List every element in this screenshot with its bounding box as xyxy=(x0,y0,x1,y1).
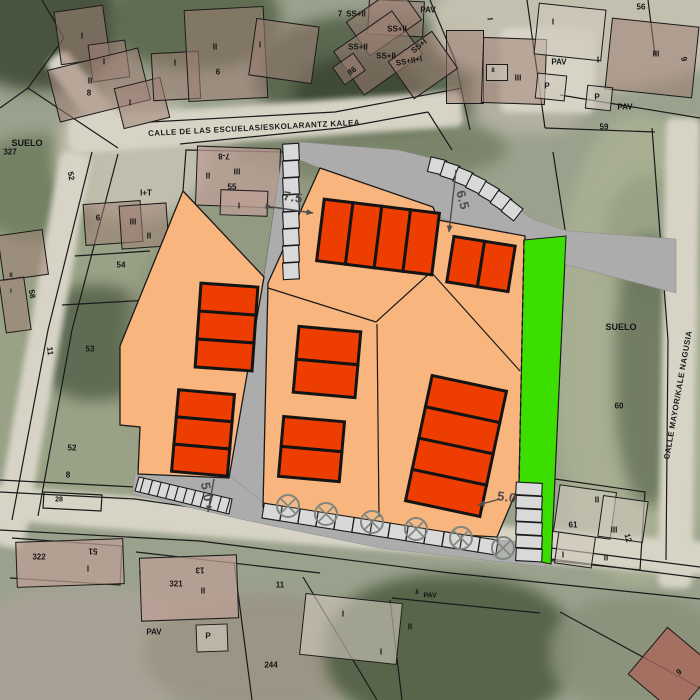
parcel-label: II xyxy=(9,273,12,279)
parcel-label: II xyxy=(595,496,599,505)
parcel-label: III xyxy=(611,526,618,535)
parcel-label: 28 xyxy=(55,497,63,504)
parcel-label: I xyxy=(380,648,382,657)
parcel-label: SS+II xyxy=(348,43,368,52)
parcel-label: 6 xyxy=(96,214,100,223)
parcel-label: I xyxy=(87,565,89,574)
parcel-label: 7-8 xyxy=(218,152,230,161)
parcel-label: II xyxy=(147,232,151,241)
parcel-label: II xyxy=(408,623,412,632)
parcel-label: 58 xyxy=(27,289,37,299)
dimension-label: 5.0 xyxy=(496,488,517,506)
parcel-label: I xyxy=(552,18,554,27)
parcel-label: PAV xyxy=(420,6,435,15)
parcel-label: PAV xyxy=(146,628,161,637)
parcel-label: I xyxy=(139,570,141,579)
dimension-label: 5.0 xyxy=(198,481,216,503)
parcel-label: 51 xyxy=(89,547,98,556)
parcel-label: 244 xyxy=(264,661,277,670)
dimension-label: 6.5 xyxy=(453,189,473,212)
parcel-label: III xyxy=(130,218,137,227)
parcel-label: I xyxy=(10,289,12,295)
parcel-label: I xyxy=(562,551,564,560)
parcel-label: 321 xyxy=(169,580,182,589)
parcel-label: I xyxy=(259,41,261,50)
parcel-label: 56 xyxy=(637,3,646,12)
parcel-label: 8 xyxy=(491,68,494,74)
parcel-label: P xyxy=(544,82,549,91)
parcel-label: I xyxy=(485,17,494,20)
parcel-label: 8 xyxy=(66,471,70,480)
parcel-label: 8 xyxy=(87,89,91,98)
parcel-label: PAV xyxy=(423,593,436,600)
street-name-right: CALLE MAYOR/KALE NAGUSIA xyxy=(662,330,694,460)
parcel-label: 53 xyxy=(86,345,95,354)
parcel-label: 13 xyxy=(196,566,205,575)
parcel-label: P xyxy=(594,93,599,102)
parcel-label: I xyxy=(238,202,240,211)
parcel-label: III xyxy=(515,74,522,83)
parcel-label: III xyxy=(234,168,241,177)
parcel-label: SUELO xyxy=(605,322,636,332)
parcel-label: 61 xyxy=(569,521,578,530)
parcel-label: 327 xyxy=(3,148,16,157)
parcel-label: 55 xyxy=(228,183,237,192)
parcel-label: SS+II xyxy=(387,25,407,34)
parcel-label: 59 xyxy=(600,123,609,132)
parcel-label: 11 xyxy=(45,346,55,355)
labels-layer: IIII8ISUELO32752III6I7PAVSS+IISS+IISS+II… xyxy=(0,0,700,700)
parcel-label: I xyxy=(597,56,599,65)
parcel-label: 86 xyxy=(346,65,358,77)
parcel-label: II xyxy=(88,77,92,86)
parcel-label: 9 xyxy=(679,56,689,62)
parcel-label: II xyxy=(604,554,608,563)
parcel-label: SS+II+I xyxy=(395,54,423,67)
parcel-label: 52 xyxy=(68,444,77,453)
dimension-label: 7.5 xyxy=(282,188,304,206)
parcel-label: I xyxy=(81,32,83,41)
parcel-label: III xyxy=(653,50,660,59)
parcel-label: 322 xyxy=(32,553,45,562)
parcel-label: I xyxy=(174,59,176,68)
parcel-label: 8 xyxy=(415,590,418,596)
parcel-label: 9 xyxy=(675,667,684,677)
parcel-label: I xyxy=(129,99,131,108)
parcel-label: SS+I xyxy=(409,37,428,55)
parcel-label: PAV xyxy=(617,103,632,112)
parcel-label: PAV xyxy=(551,58,566,67)
parcel-label: SS+II xyxy=(346,10,366,19)
parcel-label: 11 xyxy=(276,581,284,590)
parcel-label: 52 xyxy=(66,171,76,181)
parcel-label: 7 xyxy=(338,10,342,19)
parcel-label: SS+II xyxy=(376,52,396,61)
parcel-label: I+T xyxy=(140,189,152,198)
parcel-label: P xyxy=(205,632,210,641)
parcel-label: SUELO xyxy=(11,138,42,148)
parcel-label: I xyxy=(342,610,344,619)
cadastral-site-plan: IIII8ISUELO32752III6I7PAVSS+IISS+IISS+II… xyxy=(0,0,700,700)
parcel-label: II xyxy=(206,172,210,181)
parcel-label: II xyxy=(201,587,205,596)
street-name-top: CALLE DE LAS ESCUELAS/ESKOLARANTZ KALEA xyxy=(148,118,360,138)
parcel-label: II xyxy=(213,43,217,52)
parcel-label: 12 xyxy=(623,533,634,544)
parcel-label: 60 xyxy=(615,402,624,411)
parcel-label: I xyxy=(103,58,105,67)
parcel-label: 54 xyxy=(117,261,126,270)
parcel-label: 6 xyxy=(216,68,220,77)
